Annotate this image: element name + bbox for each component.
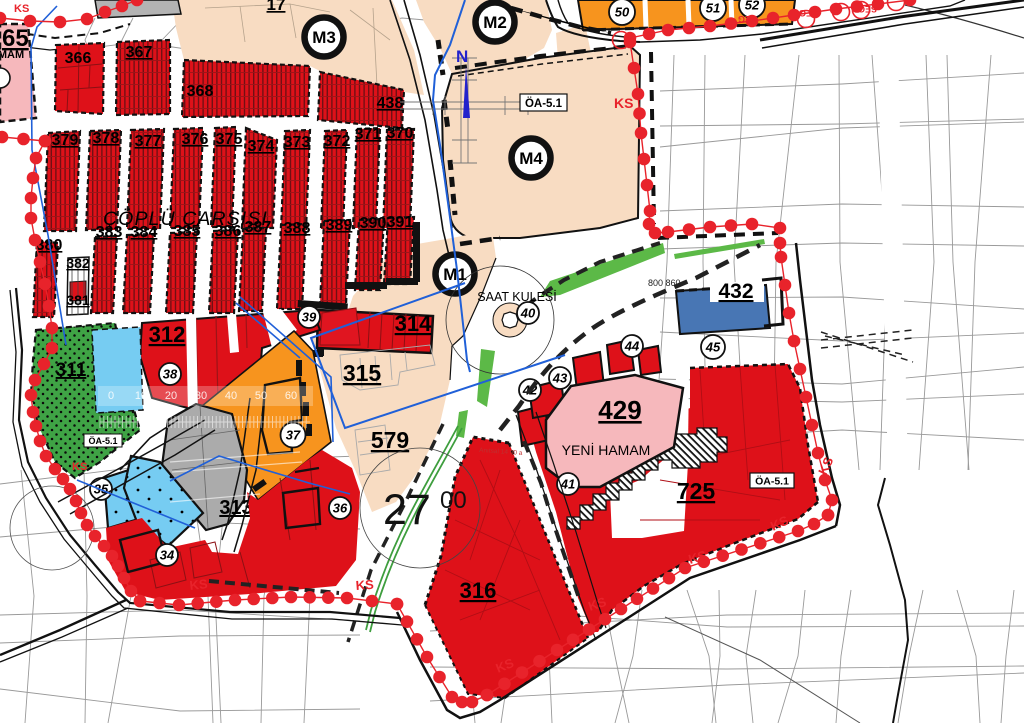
svg-text:371: 371 <box>355 126 382 143</box>
svg-text:N: N <box>456 47 468 66</box>
svg-text:432: 432 <box>718 280 753 303</box>
svg-text:373: 373 <box>284 134 311 151</box>
svg-text:37: 37 <box>286 428 301 443</box>
svg-text:HAMAM: HAMAM <box>0 49 24 61</box>
svg-text:389: 389 <box>326 217 353 234</box>
svg-text:391: 391 <box>387 214 414 231</box>
svg-text:M4: M4 <box>519 149 543 168</box>
svg-text:40: 40 <box>225 390 237 402</box>
svg-text:YENİ HAMAM: YENİ HAMAM <box>562 441 651 458</box>
svg-text:367: 367 <box>126 44 153 61</box>
svg-text:51: 51 <box>706 1 720 16</box>
svg-text:45: 45 <box>705 340 721 355</box>
svg-text:M1: M1 <box>443 265 467 284</box>
svg-text:35: 35 <box>94 482 109 497</box>
svg-text:M2: M2 <box>483 13 507 32</box>
svg-text:50: 50 <box>615 5 630 20</box>
svg-text:30: 30 <box>195 390 207 402</box>
svg-text:SAAT KULESİ: SAAT KULESİ <box>477 290 556 304</box>
svg-text:27: 27 <box>383 486 431 534</box>
svg-text:ÇÖPLÜ ÇARŞISI: ÇÖPLÜ ÇARŞISI <box>103 208 268 230</box>
svg-text:388: 388 <box>284 220 311 237</box>
svg-text:377: 377 <box>135 133 162 150</box>
svg-text:44: 44 <box>624 339 640 354</box>
svg-text:ÖA-5.1: ÖA-5.1 <box>755 475 789 488</box>
svg-text:52: 52 <box>745 0 760 13</box>
svg-text:00: 00 <box>440 487 467 514</box>
svg-text:KS: KS <box>614 95 633 111</box>
svg-text:381: 381 <box>66 292 90 308</box>
svg-text:800 860: 800 860 <box>648 278 681 288</box>
svg-text:40: 40 <box>520 306 536 321</box>
svg-text:43: 43 <box>552 371 568 386</box>
svg-text:36: 36 <box>333 501 348 516</box>
svg-text:SEG: SEG <box>738 14 757 24</box>
svg-text:17: 17 <box>267 0 286 14</box>
svg-text:315: 315 <box>343 360 382 386</box>
svg-text:370: 370 <box>387 125 414 142</box>
svg-text:374: 374 <box>248 138 275 155</box>
svg-text:316: 316 <box>460 578 497 603</box>
svg-text:375: 375 <box>216 131 243 148</box>
svg-text:SEG: SEG <box>858 4 877 14</box>
svg-text:311: 311 <box>56 360 87 381</box>
svg-text:65: 65 <box>2 25 29 52</box>
svg-text:KS: KS <box>14 3 29 15</box>
svg-text:366: 366 <box>65 50 92 67</box>
svg-text:ÖA-5.1: ÖA-5.1 <box>88 436 117 446</box>
svg-text:429: 429 <box>598 395 641 425</box>
svg-text:579: 579 <box>371 427 409 453</box>
svg-text:34: 34 <box>160 548 175 563</box>
svg-text:312: 312 <box>149 322 186 347</box>
svg-text:60: 60 <box>285 390 297 402</box>
svg-text:438: 438 <box>377 95 404 112</box>
svg-text:39: 39 <box>302 310 317 325</box>
svg-text:376: 376 <box>182 131 209 148</box>
svg-text:382: 382 <box>66 255 90 271</box>
svg-text:379: 379 <box>52 132 79 149</box>
svg-text:20: 20 <box>165 390 177 402</box>
svg-text:390: 390 <box>360 215 387 232</box>
svg-text:50: 50 <box>255 390 267 402</box>
svg-text:314: 314 <box>395 311 432 336</box>
svg-text:725: 725 <box>677 478 716 504</box>
svg-text:0: 0 <box>108 390 114 402</box>
svg-text:KS: KS <box>355 577 374 593</box>
svg-text:M3: M3 <box>312 28 336 47</box>
svg-text:ÖA-5.1: ÖA-5.1 <box>525 97 563 110</box>
svg-text:38: 38 <box>163 367 178 382</box>
svg-text:368: 368 <box>187 83 214 100</box>
svg-text:KS: KS <box>189 576 209 593</box>
svg-text:SEG: SEG <box>799 8 818 18</box>
svg-text:KS: KS <box>72 461 87 473</box>
svg-text:378: 378 <box>93 130 120 147</box>
svg-text:372: 372 <box>324 133 351 150</box>
svg-text:10: 10 <box>135 390 147 402</box>
